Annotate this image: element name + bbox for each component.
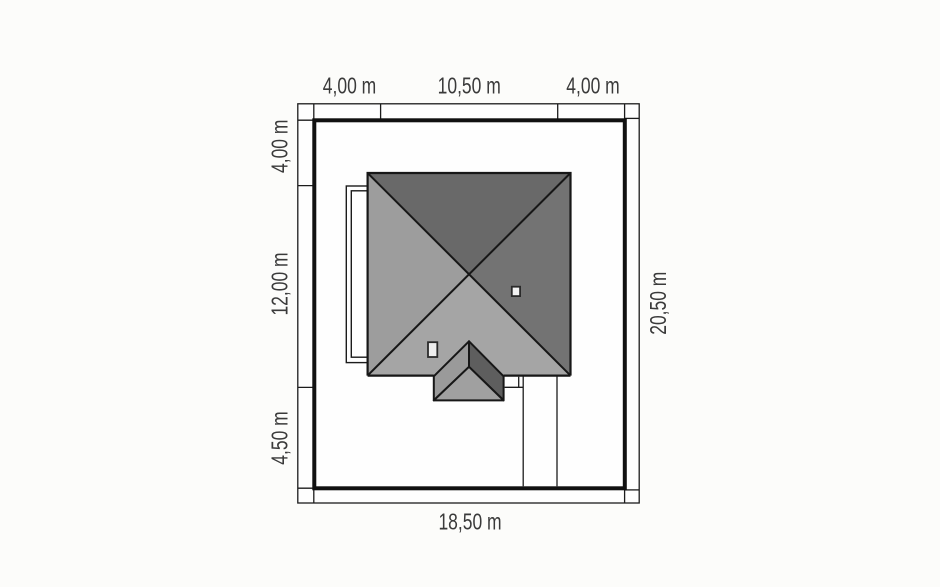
svg-text:4,00 m: 4,00 m bbox=[268, 120, 293, 173]
svg-text:10,50 m: 10,50 m bbox=[438, 74, 501, 99]
svg-text:4,00 m: 4,00 m bbox=[323, 74, 376, 99]
svg-text:4,50 m: 4,50 m bbox=[268, 411, 293, 464]
svg-text:18,50 m: 18,50 m bbox=[438, 510, 501, 535]
svg-text:4,00 m: 4,00 m bbox=[566, 74, 619, 99]
svg-text:20,50 m: 20,50 m bbox=[647, 272, 672, 335]
svg-text:12,00 m: 12,00 m bbox=[268, 252, 293, 315]
